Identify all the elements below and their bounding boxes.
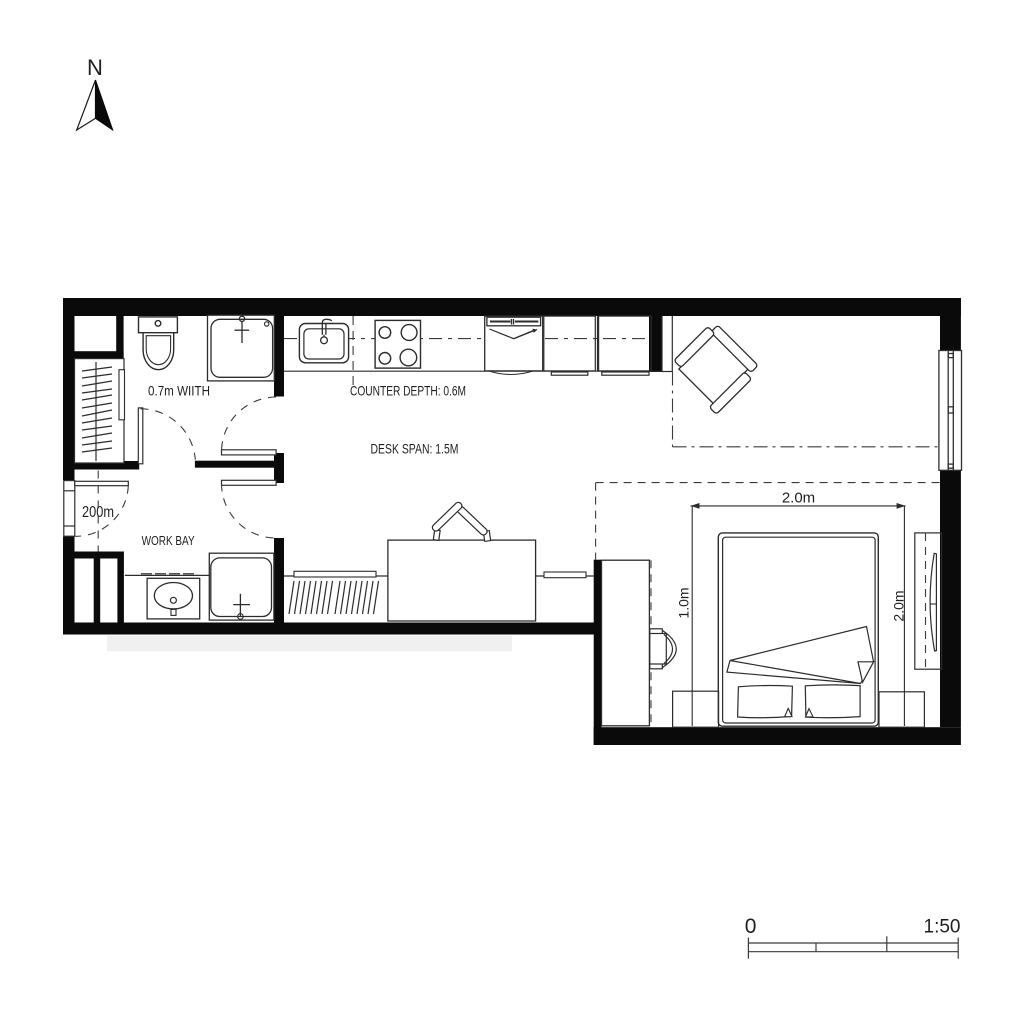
svg-text:N: N [87, 55, 103, 80]
svg-text:1.0m: 1.0m [676, 587, 692, 618]
svg-text:200m: 200m [82, 504, 114, 521]
svg-text:1:50: 1:50 [924, 917, 961, 938]
svg-text:WORK BAY: WORK BAY [142, 533, 195, 548]
svg-text:2.0m: 2.0m [782, 490, 815, 507]
svg-text:COUNTER DEPTH: 0.6M: COUNTER DEPTH: 0.6M [350, 383, 466, 399]
svg-text:2.0m: 2.0m [891, 590, 907, 621]
svg-text:0.7m WIITH: 0.7m WIITH [148, 383, 210, 399]
svg-text:DESK SPAN: 1.5M: DESK SPAN: 1.5M [371, 441, 459, 457]
svg-text:0: 0 [745, 915, 757, 938]
